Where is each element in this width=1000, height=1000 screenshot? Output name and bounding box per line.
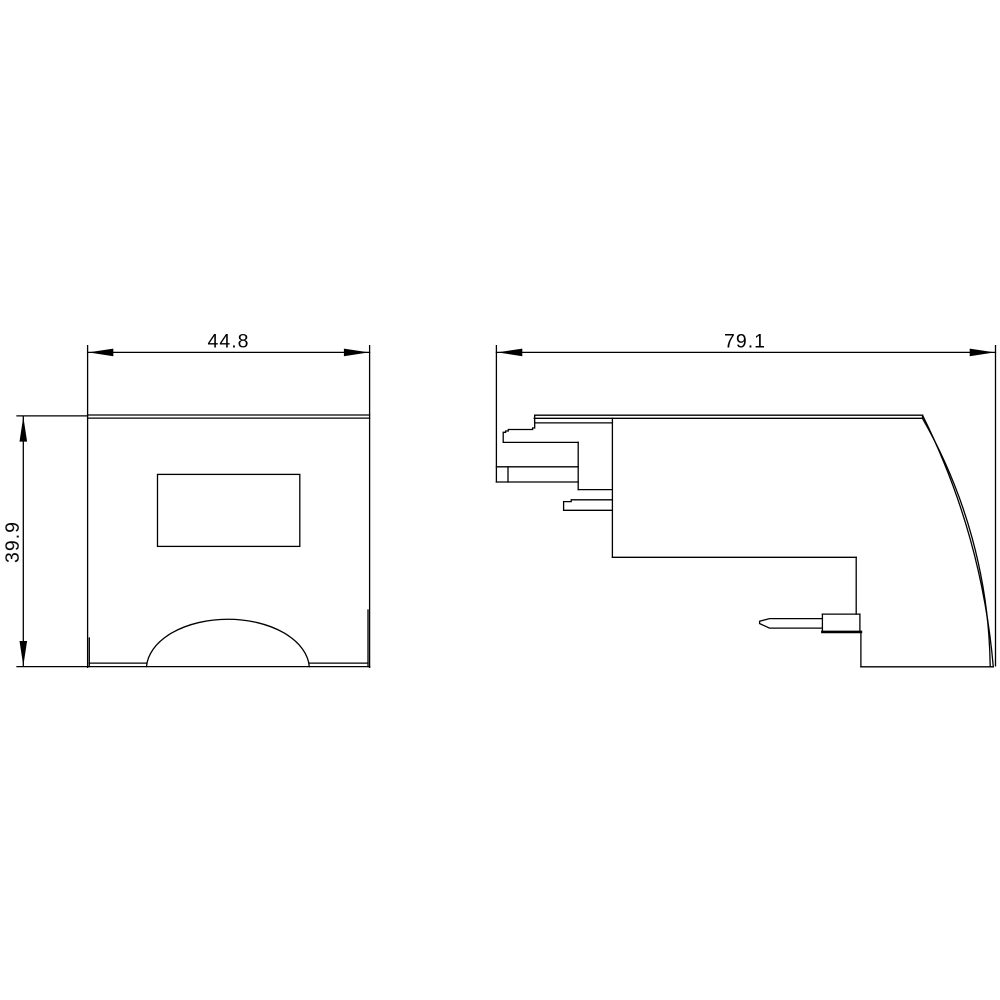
svg-text:79.1: 79.1 xyxy=(724,331,766,353)
svg-text:39.9: 39.9 xyxy=(2,521,24,563)
svg-text:44.8: 44.8 xyxy=(208,331,250,353)
